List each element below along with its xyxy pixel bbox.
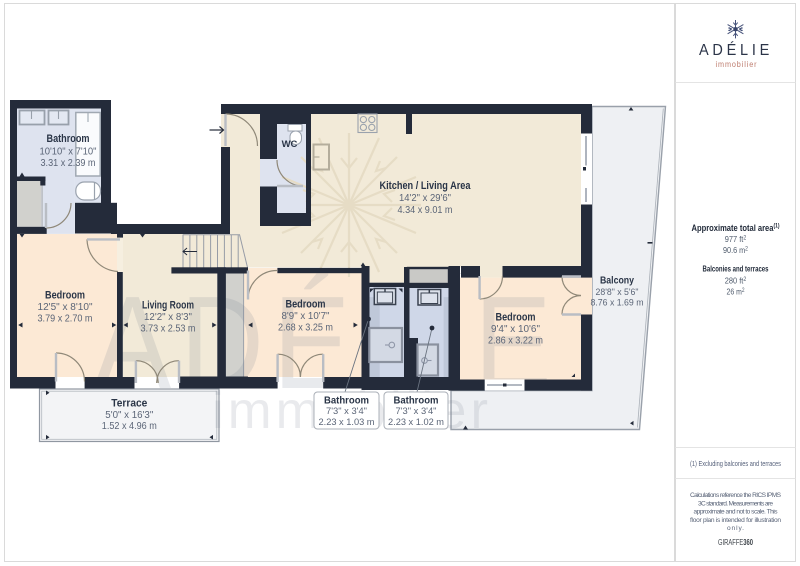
svg-text:3.31 x 2.39 m: 3.31 x 2.39 m [41,158,96,169]
svg-text:immobilier: immobilier [716,60,758,69]
svg-text:Balconies and terraces: Balconies and terraces [703,265,770,274]
svg-text:Bathroom: Bathroom [47,133,90,145]
svg-text:Kitchen / Living Area: Kitchen / Living Area [380,180,472,192]
svg-text:Bathroom: Bathroom [324,396,369,407]
svg-text:3.79 x 2.70 m: 3.79 x 2.70 m [38,314,93,325]
svg-text:Balcony: Balcony [600,275,634,287]
svg-text:9'4" x 10'6": 9'4" x 10'6" [491,324,540,335]
svg-text:Bedroom: Bedroom [496,312,536,324]
svg-text:5'0" x 16'3": 5'0" x 16'3" [105,410,153,421]
svg-text:2.23 x 1.03 m: 2.23 x 1.03 m [319,417,375,428]
svg-text:90.6 m2: 90.6 m2 [723,245,749,255]
svg-text:Bedroom: Bedroom [45,290,85,302]
svg-text:1.52 x 4.96 m: 1.52 x 4.96 m [102,421,157,432]
svg-text:10'10" x 7'10": 10'10" x 7'10" [40,147,97,158]
svg-text:Approximate total area(1): Approximate total area(1) [692,223,780,233]
svg-text:Terrace: Terrace [111,398,147,410]
svg-text:8'9" x 10'7": 8'9" x 10'7" [282,311,330,322]
svg-text:GIRAFFE360: GIRAFFE360 [718,537,753,547]
svg-text:Calculations reference the RIC: Calculations reference the RICS IPMS [690,492,782,499]
svg-text:WC: WC [282,139,298,150]
svg-text:only.: only. [727,525,744,532]
svg-text:Living Room: Living Room [142,300,194,312]
svg-text:3C standard. Measurements are: 3C standard. Measurements are [698,500,773,507]
svg-text:2.86 x 3.22 m: 2.86 x 3.22 m [488,336,543,347]
svg-text:Bedroom: Bedroom [286,299,326,311]
svg-text:approximate and not to scale.: approximate and not to scale. This [694,509,779,516]
svg-text:(1) Excluding balconies and te: (1) Excluding balconies and terraces [690,459,781,468]
svg-text:4.34 x 9.01 m: 4.34 x 9.01 m [398,205,453,216]
svg-text:12'5" x 8'10": 12'5" x 8'10" [38,302,93,313]
svg-text:7'3" x 3'4": 7'3" x 3'4" [326,406,367,417]
svg-text:2.23 x 1.02 m: 2.23 x 1.02 m [388,417,444,428]
svg-text:2.68 x 3.25 m: 2.68 x 3.25 m [278,323,333,334]
svg-text:14'2" x 29'6": 14'2" x 29'6" [399,193,451,204]
svg-text:7'3" x 3'4": 7'3" x 3'4" [396,406,437,417]
svg-text:ADÉLIE: ADÉLIE [699,42,773,59]
svg-text:3.73 x 2.53 m: 3.73 x 2.53 m [141,324,196,335]
svg-text:floor plan is intended for ill: floor plan is intended for illustration [690,517,781,524]
svg-text:Bathroom: Bathroom [394,396,439,407]
svg-text:28'8" x 5'6": 28'8" x 5'6" [596,287,639,298]
svg-text:8.76 x 1.69 m: 8.76 x 1.69 m [591,298,644,309]
svg-text:12'2" x 8'3": 12'2" x 8'3" [144,312,192,323]
